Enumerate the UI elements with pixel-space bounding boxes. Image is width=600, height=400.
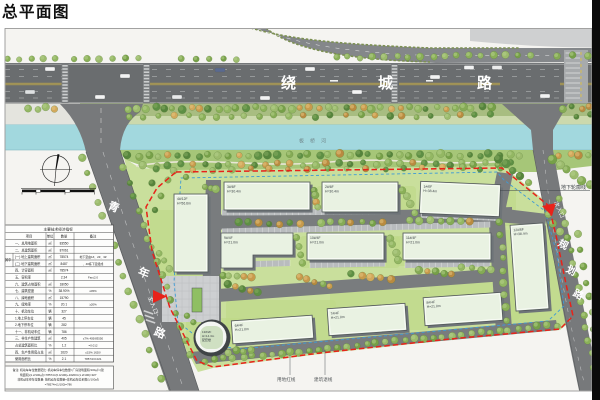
svg-text:20.1: 20.1 [61, 303, 67, 307]
svg-text:=0.012: =0.012 [89, 344, 98, 348]
svg-text:18050: 18050 [60, 282, 69, 286]
svg-text:2.34: 2.34 [61, 276, 67, 280]
svg-text:Far≤2.0: Far≤2.0 [88, 276, 98, 280]
svg-text:占总建筑面积比: 占总建筑面积比 [15, 343, 37, 348]
svg-text:非机动车停车位数量: 按机动车位数量×非机动车位系数(1/1: 非机动车停车位数量: 按机动车位数量×非机动车位系数(1/100㎡) [17, 377, 99, 382]
svg-text:2.1: 2.1 [62, 357, 67, 361]
svg-text:15790: 15790 [60, 296, 69, 300]
svg-text:总平面图: 总平面图 [2, 2, 70, 21]
svg-text:十、机动车位: 十、机动车位 [15, 309, 35, 314]
svg-text:配套楼: 配套楼 [202, 337, 211, 342]
svg-text:城: 城 [378, 74, 393, 92]
svg-text:H=56.6m: H=56.6m [177, 201, 191, 205]
svg-text:2.地下停车位: 2.地下停车位 [15, 322, 34, 327]
svg-text:二、总建筑面积: 二、总建筑面积 [15, 247, 38, 252]
svg-text:786: 786 [61, 330, 67, 334]
svg-text:78574=0.021: 78574=0.021 [85, 357, 102, 361]
svg-text:H=21.0m: H=21.0m [406, 240, 420, 244]
svg-text:主要技术经济指标: 主要技术经济指标 [44, 226, 74, 231]
svg-text:1.2: 1.2 [62, 344, 67, 348]
svg-text:H=21.0m: H=21.0m [224, 240, 238, 244]
svg-text:1.地上停车位: 1.地上停车位 [15, 315, 34, 320]
svg-text:≤7% 405/83550: ≤7% 405/83550 [83, 337, 104, 341]
svg-text:筑面积)(1.2/100㎡)=78574×(6.4/100): 筑面积)(1.2/100㎡)=78574×(6.4/100)+16200×(1.… [20, 372, 97, 377]
svg-text:(一) 地上建筑面积: (一) 地上建筑面积 [15, 254, 41, 259]
svg-text:78574: 78574 [60, 255, 69, 259]
svg-text:六、建筑占地面积: 六、建筑占地面积 [15, 281, 41, 286]
svg-text:三、非生产性建筑: 三、非生产性建筑 [15, 336, 41, 341]
svg-text:83550: 83550 [60, 242, 69, 246]
svg-text:项目: 项目 [26, 235, 33, 239]
svg-text:四、计容面积: 四、计容面积 [15, 268, 35, 273]
svg-text:九、绿地率: 九、绿地率 [15, 302, 32, 307]
svg-text:备注: 机动车车位数量配比: 机动车停车位数量=厂房建筑面积: 备注: 机动车车位数量配比: 机动车停车位数量=厂房建筑面积/100㎡×(建 [13, 367, 104, 372]
svg-text:七、建筑密度: 七、建筑密度 [15, 288, 35, 293]
svg-text:绕: 绕 [281, 74, 296, 92]
svg-text:45: 45 [62, 316, 66, 320]
svg-text:单位: 单位 [47, 234, 54, 239]
svg-text:H=30.4m: H=30.4m [227, 189, 241, 193]
svg-text:%: % [49, 357, 52, 361]
svg-text:≤15% 1620/: ≤15% 1620/ [85, 350, 101, 354]
svg-text:%: % [49, 289, 52, 293]
svg-text:、4#栋下室组成: 、4#栋下室组成 [83, 261, 104, 266]
svg-text:1620: 1620 [60, 350, 67, 354]
svg-text:87061: 87061 [60, 248, 69, 252]
svg-text:建筑退线: 建筑退线 [314, 376, 333, 383]
svg-text:=78574×(1/100)=786: =78574×(1/100)=786 [45, 382, 72, 386]
svg-text:78574: 78574 [60, 269, 69, 273]
svg-text:(二) 地下建筑面积: (二) 地下建筑面积 [15, 261, 41, 266]
svg-text:其中: 其中 [5, 257, 11, 262]
svg-text:四、生产性用房占总: 四、生产性用房占总 [15, 349, 44, 354]
svg-text:地下室由1#、2#、3#: 地下室由1#、2#、3# [80, 254, 107, 259]
svg-text:地下轮廓线: 地下轮廓线 [561, 184, 586, 191]
svg-text:H=21.0m: H=21.0m [310, 240, 324, 244]
svg-text:≥20%: ≥20% [89, 303, 97, 307]
svg-text:八、绿地面积: 八、绿地面积 [15, 295, 35, 300]
svg-text:一、总用地面积: 一、总用地面积 [15, 241, 38, 246]
svg-text:%: % [49, 344, 52, 348]
svg-text:H=30.4m: H=30.4m [325, 189, 339, 193]
svg-text:405: 405 [61, 337, 67, 341]
svg-text:282: 282 [61, 323, 67, 327]
svg-text:板桥河: 板桥河 [299, 138, 332, 145]
svg-text:H=38.4m: H=38.4m [423, 189, 437, 194]
svg-text:8487: 8487 [60, 262, 67, 266]
svg-text:38.90%: 38.90% [59, 289, 70, 293]
svg-text:数量: 数量 [61, 234, 68, 239]
svg-text:≤45%: ≤45% [89, 289, 97, 293]
svg-text:327: 327 [61, 310, 67, 314]
svg-text:使用面积比: 使用面积比 [15, 356, 31, 361]
svg-text:路: 路 [477, 74, 493, 92]
svg-text:备注: 备注 [90, 234, 97, 239]
svg-text:五、容积率: 五、容积率 [15, 275, 32, 280]
svg-text:%: % [49, 303, 52, 307]
svg-text:十一、非机动车位: 十一、非机动车位 [15, 329, 41, 334]
svg-text:用地红线: 用地红线 [277, 376, 296, 383]
